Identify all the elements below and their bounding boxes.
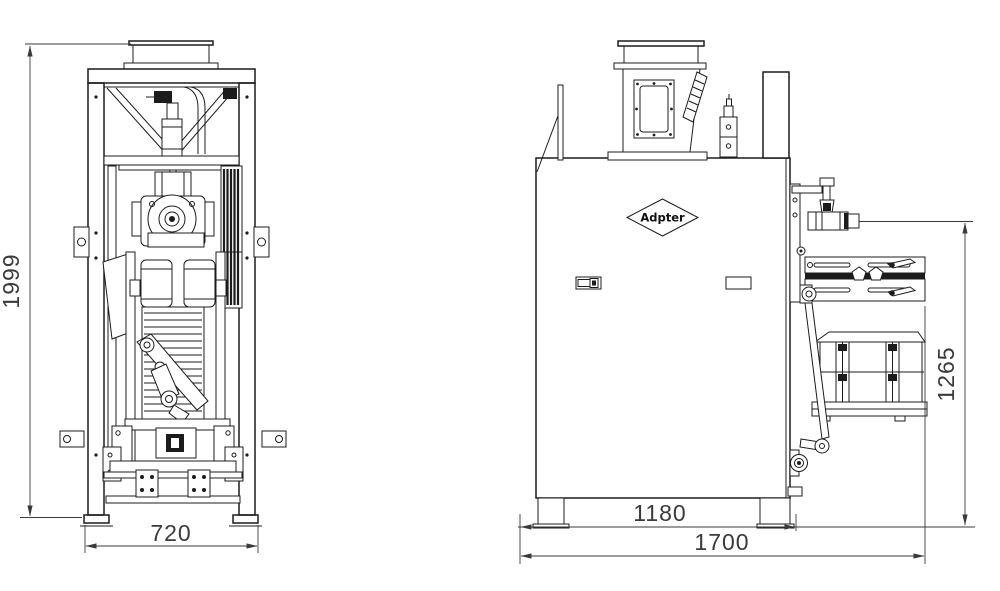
side-hopper <box>608 41 707 160</box>
dim-leg-span-value: 1180 <box>633 500 686 526</box>
front-lower-assembly <box>60 419 286 503</box>
dim-spout-height-value: 1265 <box>933 346 959 401</box>
front-inlet <box>124 41 218 69</box>
front-bearing <box>132 172 214 247</box>
front-shelf-plate <box>104 156 239 165</box>
front-cylinders <box>130 260 226 307</box>
front-shelf-plate-2 <box>119 165 224 170</box>
side-view: Adpter <box>518 41 975 564</box>
dim-base-width: 720 <box>85 520 258 553</box>
front-left-cover <box>103 254 128 339</box>
dim-leg-span: 1180 <box>518 500 975 531</box>
side-post <box>763 72 789 158</box>
front-view: 1999 720 <box>0 41 286 553</box>
side-valve <box>720 94 737 157</box>
dim-overall-height-value: 1999 <box>0 253 24 308</box>
dim-overall-depth-value: 1700 <box>694 529 749 555</box>
side-bagging-mechanism <box>788 178 927 496</box>
technical-drawing: 1999 720 <box>0 0 1000 591</box>
drawing-canvas: 1999 720 <box>0 0 1000 591</box>
dim-base-width-value: 720 <box>150 520 191 546</box>
adapter-tag-label: Adpter <box>640 211 685 225</box>
